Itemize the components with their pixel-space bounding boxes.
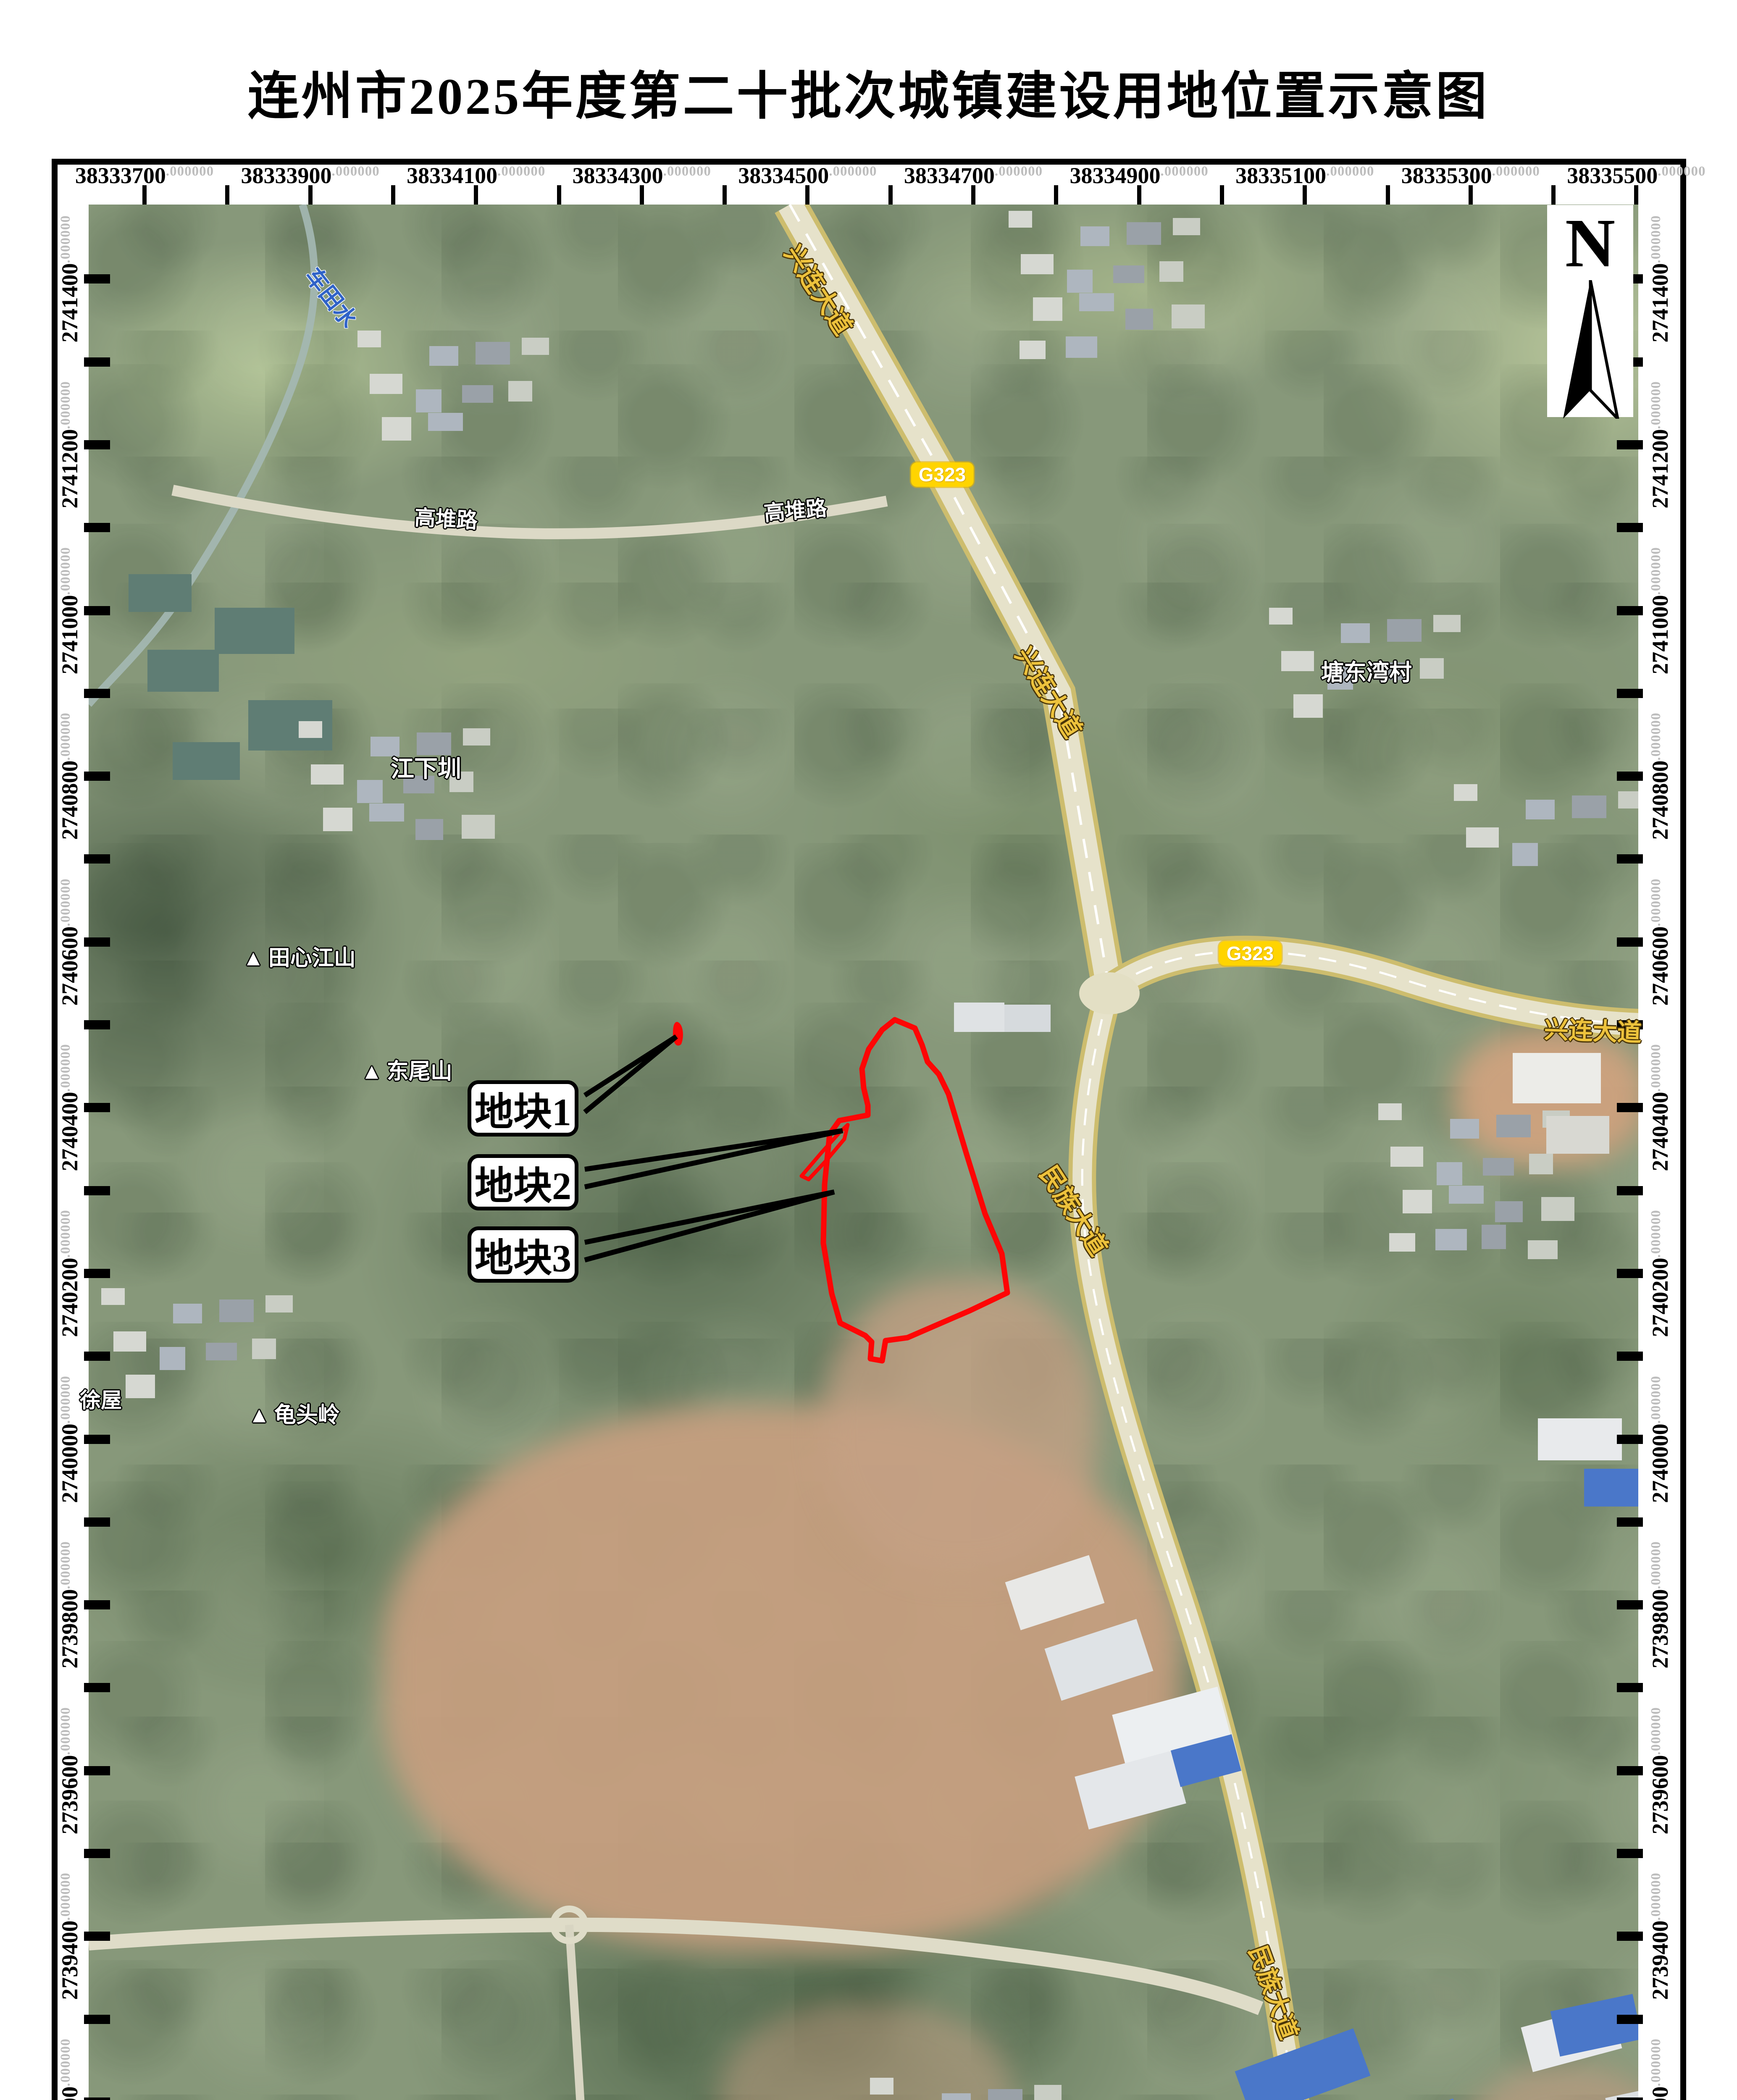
mountain-icon: ▲ [248,1403,270,1428]
axis-label-y-right: 2740400.000000 [1647,1044,1673,1171]
village-building [311,764,344,785]
village-building [1021,254,1054,274]
axis-tick-right [1617,1186,1643,1195]
mountain-icon: ▲ [242,946,264,971]
village-building [1066,336,1097,358]
village-building [160,1347,185,1370]
village-building [429,346,458,366]
axis-label-y-left: 2741200.000000 [57,381,83,508]
axis-label-x-top: 38333900.000000 [241,163,379,189]
village-building [870,2078,893,2095]
axis-tick-right [1617,523,1643,532]
road-minzu-casing [1082,990,1334,2100]
axis-tick-right [1617,1849,1643,1858]
parcel-1-callout: 地块1 [468,1080,578,1137]
mount-label-tianxin: ▲田心江山 [242,940,355,972]
village-building [1496,1115,1531,1137]
axis-tick-right [1617,1269,1643,1278]
industrial-building [954,1003,1004,1032]
village-building [1033,297,1062,321]
industrial-building [1005,1555,1105,1630]
parcel-2-label: 地块2 [475,1155,571,1210]
land-use-map-sheet: { "title": "连州市2025年度第二十批次城镇建设用地位置示意图", … [0,0,1737,2100]
village-building [522,338,549,355]
village-building [1173,218,1200,235]
mount-guitou-text: 龟头岭 [274,1403,340,1428]
leader-parcel-3 [585,1192,834,1260]
village-building [463,728,490,745]
village-building [1512,843,1538,866]
village-building [252,1339,276,1359]
north-letter: N [1547,208,1633,278]
parcel-1-outline [674,1023,682,1045]
village-building [1172,304,1205,328]
village-building [1618,791,1638,808]
village-building [1269,608,1293,625]
village-building [1127,222,1161,245]
village-building [1526,800,1555,819]
pond [129,574,192,612]
axis-tick-left [84,1020,110,1029]
axis-tick-right [1617,1600,1643,1609]
village-label-xuwu: 徐屋 [80,1383,122,1414]
village-building [462,385,493,403]
village-building [508,381,532,402]
village-building [113,1331,146,1352]
axis-tick-right [1617,772,1643,781]
village-building [428,413,463,431]
industrial-building [1045,1619,1154,1701]
page-title: 连州市2025年度第二十批次城镇建设用地位置示意图 [0,55,1737,129]
axis-label-y-right: 2740600.000000 [1647,878,1673,1005]
road-label-gaodui-2: 高堆路 [762,491,828,527]
road-label-xinglian-3: 兴连大道 [1544,1010,1642,1048]
village-building [416,389,441,412]
village-building [265,1295,293,1312]
village-building [1420,658,1444,679]
pond [215,608,294,654]
village-building [988,2089,1022,2100]
village-building [1020,341,1046,359]
village-building [1067,270,1093,293]
axis-tick-left [84,2015,110,2024]
village-building [1403,1190,1432,1213]
axis-tick-right [1617,2097,1643,2100]
axis-label-x-top: 38335100.000000 [1235,163,1374,189]
industrial-building [1538,1418,1622,1460]
axis-label-x-top: 38334500.000000 [738,163,877,189]
axis-label-y-right: 2740200.000000 [1647,1210,1673,1337]
industrial-building [1327,2098,1472,2100]
axis-tick-top [888,185,893,205]
axis-tick-top [225,185,229,205]
axis-tick-top [1386,185,1390,205]
village-building [1450,1119,1479,1139]
axis-tick-right [1617,689,1643,698]
axis-tick-left [84,1103,110,1112]
axis-tick-top [1054,185,1058,205]
village-building [1437,1162,1462,1185]
axis-tick-left [84,1269,110,1278]
axis-label-y-right: 2739400.000000 [1647,1873,1673,2000]
north-arrow-icon [1555,280,1626,419]
parcel-1-label: 地块1 [475,1081,571,1137]
industrial-building [1235,2028,1371,2100]
village-building [1387,619,1422,642]
axis-tick-right [1617,1517,1643,1527]
axis-tick-right [1617,1683,1643,1692]
mount-label-guitou: ▲龟头岭 [248,1397,339,1429]
axis-tick-right [1617,440,1643,449]
axis-tick-left [84,772,110,781]
axis-tick-top [1551,185,1556,205]
axis-tick-left [84,1766,110,1775]
axis-label-x-top: 38333700.000000 [75,163,214,189]
village-building [323,808,352,831]
village-building [173,1304,202,1323]
axis-tick-right [1617,606,1643,615]
village-building [415,819,443,840]
village-building [1125,309,1153,330]
road-minzu-centerline [1082,990,1334,2100]
axis-tick-top [723,185,727,205]
village-building [1483,1158,1514,1176]
axis-label-y-left: 2740800.000000 [57,712,83,840]
map-overlay [89,205,1638,2100]
industrial-building [1584,1469,1638,1507]
axis-tick-left [84,1517,110,1527]
axis-tick-left [84,606,110,615]
axis-label-y-left: 2739200.000000 [57,2038,83,2100]
axis-label-y-left: 2740400.000000 [57,1044,83,1171]
village-building [1495,1201,1523,1222]
village-building [1080,226,1109,246]
village-building [370,374,402,394]
north-arrow: N [1547,205,1633,417]
fish-ponds [129,574,332,780]
village-building [1079,293,1114,311]
village-building [462,815,495,839]
industrial-building [1550,1994,1638,2056]
village-building [1113,265,1144,283]
village-label-jiangxia: 江下圳 [391,750,461,784]
village-building [1482,1225,1506,1249]
axis-tick-left [84,937,110,947]
parcel-3-callout: 地块3 [468,1226,578,1283]
village-label-tangdongwan: 塘东湾村 [1321,654,1412,687]
junction [1079,972,1140,1014]
village-building [382,417,411,441]
village-building [1034,2085,1062,2100]
axis-tick-left [84,357,110,367]
axis-tick-left [84,274,110,283]
axis-tick-left [84,1435,110,1444]
axis-tick-left [84,689,110,698]
axis-label-y-left: 2741400.000000 [57,215,83,343]
village-building [1378,1103,1402,1120]
axis-tick-right [1617,1766,1643,1775]
village-building [1389,1233,1415,1252]
route-badge-g323-2: G323 [1219,941,1282,966]
axis-tick-right [1617,1435,1643,1444]
village-building [1528,1240,1558,1259]
village-building [1541,1197,1574,1221]
village-building [1159,261,1183,282]
axis-label-y-right: 2741000.000000 [1647,547,1673,674]
axis-tick-left [84,2097,110,2100]
village-building [1435,1229,1467,1250]
village-building [1009,211,1032,228]
road-south-branch [569,1925,591,2100]
axis-label-y-right: 2739600.000000 [1647,1707,1673,1834]
axis-tick-right [1617,2015,1643,2024]
axis-tick-right [1617,1103,1643,1112]
village-building [1529,1154,1553,1174]
axis-tick-left [84,523,110,532]
village-building [1466,827,1499,848]
parcel-2-callout: 地块2 [468,1154,578,1210]
satellite-map [89,205,1638,2100]
axis-label-y-left: 2740000.000000 [57,1375,83,1503]
axis-label-x-top: 38334700.000000 [904,163,1043,189]
village-building [1293,694,1323,718]
axis-label-y-left: 2740600.000000 [57,878,83,1005]
village-building [369,803,404,822]
axis-tick-left [84,1352,110,1361]
village-building [1390,1147,1423,1167]
axis-tick-left [84,1849,110,1858]
axis-tick-right [1617,937,1643,947]
village-building [1454,784,1477,801]
village-building [476,342,510,365]
route-badge-g323-1: G323 [911,462,974,487]
mount-tianxin-text: 田心江山 [268,946,356,971]
axis-label-x-top: 38334300.000000 [573,163,711,189]
parcel-3-label: 地块3 [475,1227,571,1283]
industrial-building [1004,1005,1051,1032]
axis-tick-left [84,1683,110,1692]
axis-tick-right [1617,1352,1643,1361]
mount-dongwei-text: 东尾山 [387,1060,452,1084]
axis-tick-left [84,854,110,864]
axis-label-y-right: 2741200.000000 [1647,381,1673,508]
axis-tick-top [391,185,395,205]
axis-tick-right [1617,1932,1643,1941]
mountain-icon: ▲ [361,1060,382,1084]
road-label-gaodui-1: 高堆路 [414,501,478,534]
road-minzu [1082,990,1334,2100]
axis-label-y-right: 2739200.000000 [1647,2038,1673,2100]
village-buildings [101,211,1638,2100]
axis-label-y-right: 2740000.000000 [1647,1375,1673,1503]
village-building [219,1299,254,1322]
axis-tick-left [84,1932,110,1941]
axis-tick-left [84,440,110,449]
pond [147,650,219,692]
industrial-building [1546,1116,1609,1154]
industrial-building [1513,1053,1601,1103]
village-building [299,721,322,738]
village-building [942,2093,971,2100]
axis-label-y-right: 2741400.000000 [1647,215,1673,343]
axis-label-y-left: 2739400.000000 [57,1873,83,2000]
parcel-3-outline [823,1020,1007,1361]
axis-label-x-top: 38335500.000000 [1567,163,1705,189]
axis-label-y-right: 2740800.000000 [1647,712,1673,840]
axis-label-y-left: 2740200.000000 [57,1210,83,1337]
axis-label-x-top: 38334100.000000 [407,163,545,189]
village-building [1433,615,1461,632]
village-building [1572,795,1606,818]
axis-label-y-left: 2739800.000000 [57,1541,83,1668]
village-building [126,1375,155,1398]
axis-label-y-left: 2741000.000000 [57,547,83,674]
industrial-building [1605,2075,1638,2100]
village-building [357,780,383,803]
axis-label-x-top: 38334900.000000 [1070,163,1208,189]
axis-tick-top [1220,185,1224,205]
axis-label-x-top: 38335300.000000 [1401,163,1540,189]
mount-label-dongwei: ▲东尾山 [361,1054,452,1085]
axis-tick-top [557,185,561,205]
axis-tick-left [84,1600,110,1609]
village-building [101,1288,125,1305]
road-south [89,1925,1261,2008]
pond [173,742,240,780]
village-building [1341,623,1370,643]
village-building [1281,651,1314,671]
axis-tick-right [1617,854,1643,864]
axis-label-y-left: 2739600.000000 [57,1707,83,1834]
village-building [1449,1186,1484,1204]
leader-parcel-1 [585,1037,676,1112]
axis-tick-left [84,1186,110,1195]
village-building [357,331,381,347]
village-building [206,1343,237,1360]
axis-label-y-right: 2739800.000000 [1647,1541,1673,1668]
industrial-building [1075,1751,1186,1830]
